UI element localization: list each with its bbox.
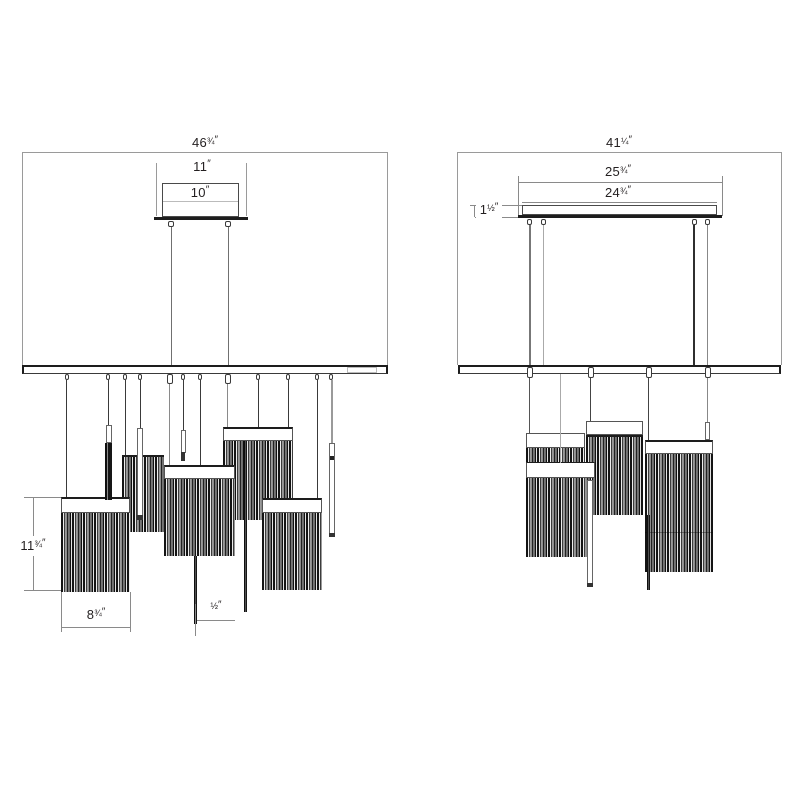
front-plate-width-label: 11″ (160, 158, 244, 176)
pendant-band (526, 433, 585, 448)
side-ext-line-right (781, 152, 782, 365)
front-rod-width-label: ½″ (201, 599, 231, 617)
side-ext-line-left (457, 152, 458, 365)
pendant-band (164, 465, 235, 479)
front-plate-ext-left (156, 163, 157, 216)
side-canopy-plate (522, 205, 717, 215)
side-bar-clip (646, 367, 652, 378)
front-mounting-plate (154, 217, 248, 220)
side-bar-clip (588, 367, 594, 378)
front-hanger-bar (22, 365, 388, 374)
front-ext-line-left (22, 152, 23, 365)
accent-tube-cap (137, 515, 143, 520)
side-mounting-plate (518, 215, 722, 218)
front-shade-height-ext-top (24, 497, 61, 498)
front-stem-rod (171, 227, 173, 365)
pendant-ribbed-shade (526, 478, 593, 557)
pendant-seam (645, 532, 713, 533)
front-canopy-width-label: 10″ (160, 184, 240, 202)
cable (227, 384, 229, 427)
pendant-ribbed-shade (61, 513, 130, 592)
cable (169, 384, 171, 465)
front-bar-driver-box (347, 367, 377, 374)
side-plate-outer-label: 25¾″ (575, 163, 661, 181)
front-stem-rod (228, 227, 230, 365)
cable (529, 378, 530, 433)
side-stem-rod (529, 225, 531, 365)
side-hanger-bar (458, 365, 781, 374)
side-bar-clip (705, 367, 711, 378)
front-ext-line-right (387, 152, 388, 365)
accent-tube (106, 425, 112, 443)
front-shade-width-dim-line (61, 627, 130, 628)
cable (317, 380, 318, 498)
dimension-drawing: 46¾″ 11″ 10″ (0, 0, 800, 800)
pendant-ribbed-shade (645, 454, 713, 572)
front-shade-height-label: 11¾″ (10, 537, 56, 555)
accent-rod (244, 441, 247, 612)
side-overall-width-label: 41¼″ (574, 134, 664, 152)
front-overall-width-label: 46¾″ (160, 134, 250, 152)
pendant-ribbed-shade (164, 479, 235, 556)
side-stem-rod (543, 225, 544, 365)
cable (183, 380, 184, 430)
accent-tube (137, 428, 143, 520)
accent-tube (587, 480, 593, 587)
pendant-band (526, 462, 595, 478)
front-rod-dim-ext (195, 604, 196, 636)
front-shade-height-ext-bottom (24, 590, 61, 591)
front-overall-width-dim-line (22, 152, 388, 153)
front-plate-ext-right (246, 163, 247, 216)
side-stem-rod (693, 225, 695, 365)
cable (66, 380, 67, 497)
pendant-band (223, 427, 293, 441)
cable (331, 380, 333, 443)
side-stem-rod (707, 225, 709, 365)
cable (648, 378, 649, 440)
side-plate-height-dim-line (474, 205, 475, 217)
front-shade-height-dim-line (33, 556, 34, 590)
cable (590, 378, 591, 421)
accent-tube-dark (105, 443, 112, 500)
cable (140, 380, 141, 428)
accent-tube-cap (587, 583, 593, 587)
side-overall-width-dim-line (457, 152, 782, 153)
cable (108, 380, 109, 425)
side-bar-clip (527, 367, 533, 378)
cable (258, 380, 259, 427)
side-plate-outer-ext (722, 176, 723, 216)
side-plate-outer-dim-line (518, 182, 722, 183)
accent-tube-tick (330, 456, 334, 460)
front-shade-height-dim-line (33, 498, 34, 536)
front-shade-width-label: 8¾″ (70, 606, 122, 624)
side-plate-inner-label: 24¾″ (575, 184, 661, 202)
pendant-band (645, 440, 713, 454)
cable (200, 380, 201, 465)
accent-tube (181, 430, 186, 453)
front-rod-dim-line (197, 620, 235, 621)
pendant-band (586, 421, 643, 435)
side-plate-inner-dim-line (522, 202, 717, 203)
front-bar-clip (225, 374, 231, 384)
cable (560, 374, 561, 463)
accent-tube-cap (181, 452, 185, 461)
pendant-band (262, 498, 322, 513)
pendant-band (61, 497, 130, 513)
front-canopy-dim-line (163, 201, 238, 202)
front-bar-clip (167, 374, 173, 384)
cable (707, 378, 708, 422)
accent-tube-cap (329, 533, 336, 537)
side-plate-height-label: 1½″ (476, 201, 502, 219)
pendant-ribbed-shade (526, 448, 585, 463)
side-plate-outer-ext (518, 176, 519, 216)
pendant-ribbed-shade (262, 513, 322, 590)
cable (125, 380, 126, 457)
accent-tube (705, 422, 710, 440)
accent-rod (647, 515, 650, 590)
